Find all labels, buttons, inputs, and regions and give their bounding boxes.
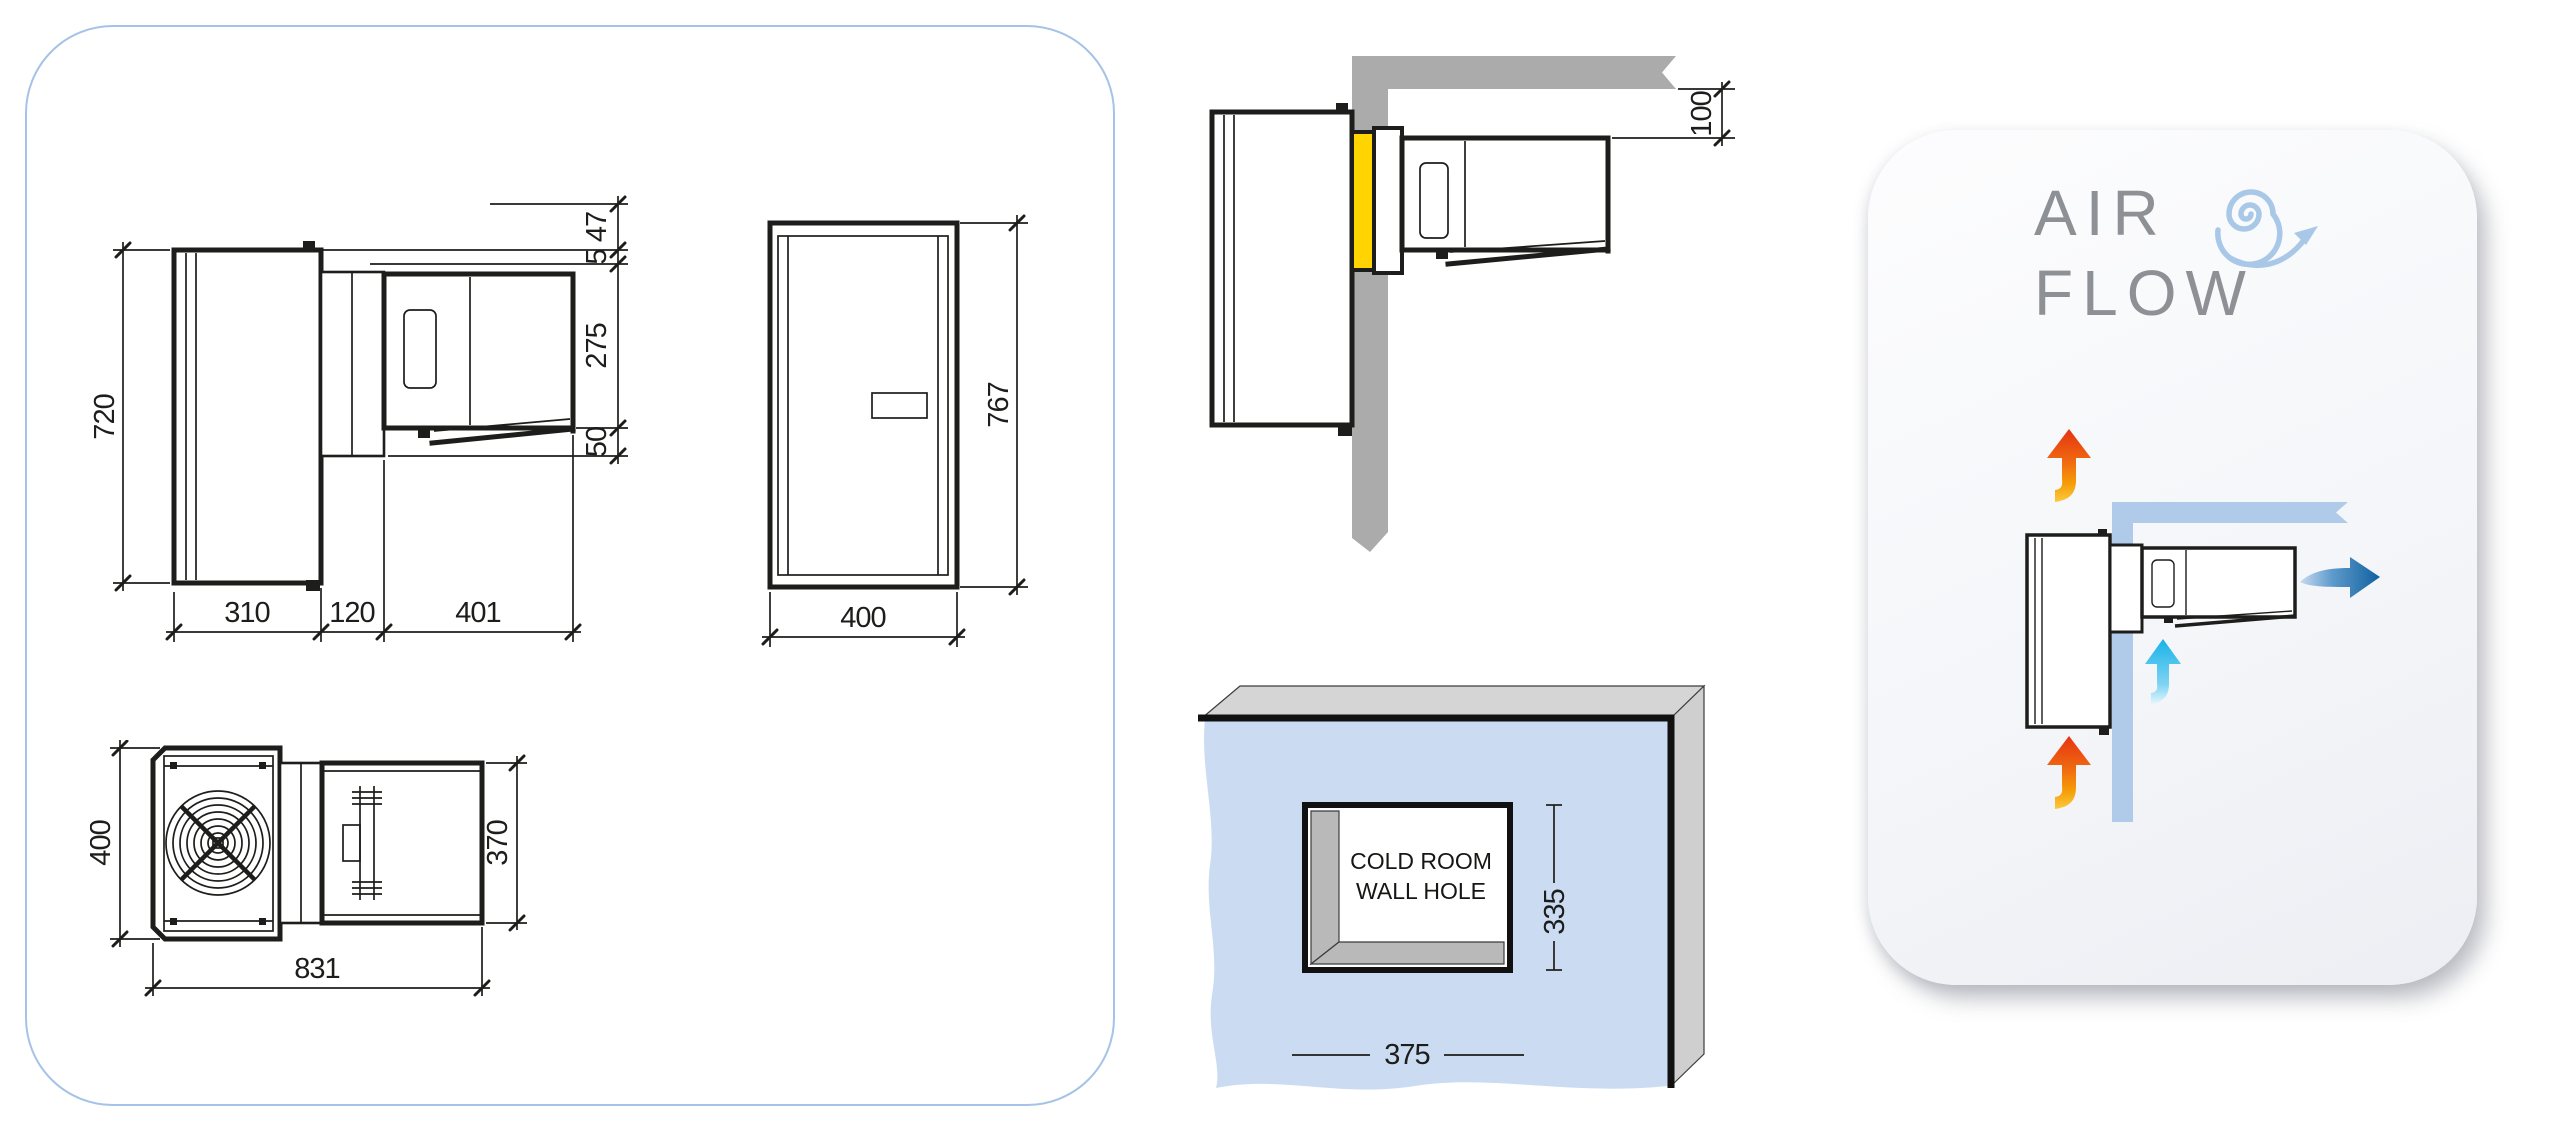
cold-air-out-arrow bbox=[2300, 557, 2380, 598]
wall-mount-unit bbox=[1212, 103, 1608, 436]
wall-mount-view: 100 bbox=[1190, 40, 1750, 600]
hot-air-arrow-top bbox=[2047, 429, 2091, 502]
dim-label-depth-outer: 401 bbox=[455, 597, 500, 629]
hole-label-line1: COLD ROOM bbox=[1350, 848, 1492, 874]
wall-mount-dimension: 100 bbox=[1612, 82, 1735, 146]
hole-label-line2: WALL HOLE bbox=[1356, 878, 1486, 904]
wall-hole: COLD ROOM WALL HOLE bbox=[1305, 805, 1510, 970]
hole-bevel-left bbox=[1311, 811, 1339, 964]
dim-label-condenser-height: 275 bbox=[581, 323, 613, 368]
condensate-tray bbox=[432, 429, 573, 443]
dim-label-height: 720 bbox=[89, 394, 121, 439]
side-view-drawing: 720 47 5 275 50 bbox=[70, 140, 650, 680]
dim-label-top-bracket: 47 bbox=[581, 212, 613, 242]
dim-label-hole-width: 375 bbox=[1384, 1039, 1429, 1071]
dim-label-depth-wall: 120 bbox=[329, 597, 374, 629]
air-flow-title-word1: AIR bbox=[2034, 177, 2168, 249]
cold-room-ceiling bbox=[1352, 56, 1676, 89]
wall-top-face bbox=[1202, 686, 1704, 718]
wall-hole-view: COLD ROOM WALL HOLE 375 335 bbox=[1190, 650, 1750, 1120]
dim-label-ceiling-clearance: 100 bbox=[1686, 91, 1718, 136]
air-flow-graphic: AIR FLOW bbox=[1868, 130, 2477, 985]
bottom-foot bbox=[306, 580, 320, 591]
wall-gasket-yellow bbox=[1352, 132, 1374, 270]
hole-bevel-bottom bbox=[1311, 942, 1504, 964]
top-view-drawing: 400 370 831 bbox=[90, 740, 550, 1010]
air-flow-title-word2: FLOW bbox=[2034, 257, 2255, 329]
wall-side-face bbox=[1671, 686, 1704, 1086]
swirl-icon bbox=[2218, 192, 2318, 265]
dim-label-gap: 5 bbox=[581, 249, 613, 264]
front-view-unit bbox=[770, 223, 957, 587]
dim-label-depth-inner: 310 bbox=[224, 597, 269, 629]
dim-label-front-height: 767 bbox=[983, 382, 1015, 427]
dim-label-front-width: 400 bbox=[840, 602, 885, 634]
cool-air-arrow bbox=[2145, 639, 2181, 704]
front-view-drawing: 767 400 bbox=[760, 210, 1060, 660]
dim-label-condenser-width: 370 bbox=[482, 820, 514, 865]
side-view-unit bbox=[174, 241, 573, 591]
dim-label-length: 831 bbox=[294, 953, 339, 985]
dim-label-drop: 50 bbox=[581, 427, 613, 457]
lifting-lug bbox=[303, 241, 315, 250]
dim-label-top-width: 400 bbox=[90, 820, 117, 865]
top-view-unit bbox=[153, 748, 482, 939]
page-canvas: 720 47 5 275 50 bbox=[0, 0, 2557, 1129]
mounting-flange bbox=[1374, 128, 1402, 273]
mini-unit-drawing bbox=[2027, 529, 2295, 735]
dim-label-hole-height: 335 bbox=[1539, 889, 1571, 934]
hot-air-arrow-bottom bbox=[2047, 736, 2091, 809]
